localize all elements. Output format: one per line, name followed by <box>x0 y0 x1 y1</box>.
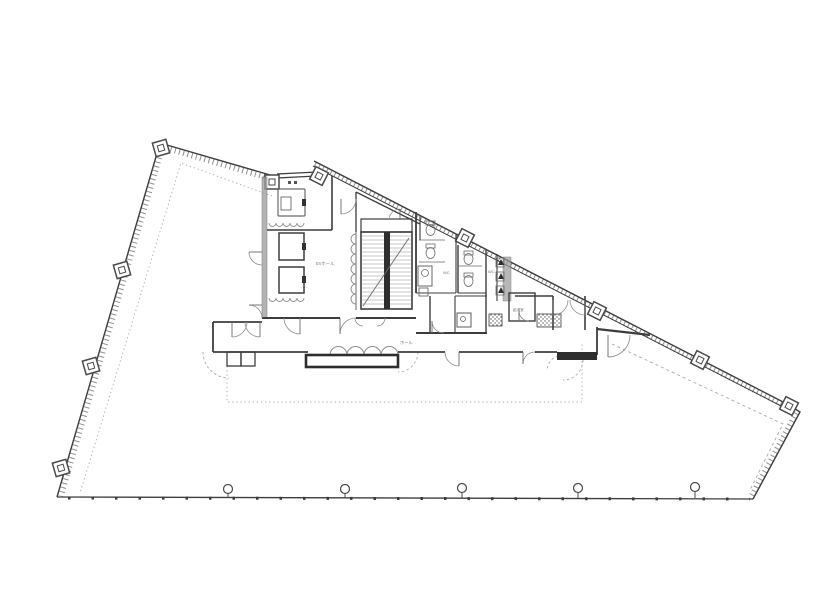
column-circle <box>458 484 467 493</box>
elevator-shaft-2 <box>279 267 304 293</box>
staircase <box>361 219 412 309</box>
duct-shaft <box>489 314 502 326</box>
column-circle <box>574 484 583 493</box>
planter-wall <box>557 352 597 360</box>
sink <box>461 317 466 322</box>
curtainwall-ticks-left <box>61 145 163 496</box>
washbasin-counter <box>418 266 432 286</box>
column-marker <box>780 397 799 416</box>
outer-boundary <box>57 143 800 499</box>
column-marker <box>310 167 329 186</box>
label-wc-a: WC <box>443 270 450 275</box>
floor-plan-canvas: EVホール <box>0 0 820 610</box>
scallop-row <box>269 298 304 302</box>
curtainwall-ticks-right <box>751 413 796 497</box>
mop-sink <box>419 288 428 296</box>
pier-box <box>241 352 255 366</box>
counter <box>457 313 471 327</box>
elevator-bank <box>279 233 306 293</box>
vent-louver-column <box>351 232 356 310</box>
column-circle <box>341 485 350 494</box>
column-marker <box>52 459 69 476</box>
dashed-door-arc <box>563 360 583 380</box>
setback-line-left <box>80 163 272 493</box>
column-markers <box>52 139 798 476</box>
curtainwall-ticks-top-left <box>162 147 275 180</box>
stair-landing <box>361 219 412 232</box>
label-wc-b: WC <box>488 269 495 274</box>
toilet-fixture <box>426 244 435 259</box>
column-marker <box>152 139 169 156</box>
column-circle <box>224 485 233 494</box>
equipment-box <box>278 189 305 216</box>
wall-right-edge <box>753 405 800 499</box>
equipment-inner <box>281 197 291 210</box>
dashed-door-arc <box>203 352 229 378</box>
entrance-canopy <box>306 355 398 367</box>
dashed-door-arc <box>398 352 418 372</box>
label-hall: ホール <box>400 340 413 345</box>
shaft-door <box>302 199 306 206</box>
column-marker <box>113 261 130 278</box>
floor-plan-page: EVホール <box>0 0 820 610</box>
column-marker <box>82 357 99 374</box>
column-circle <box>691 483 700 492</box>
toilet-fixture <box>464 251 473 265</box>
column-marker <box>588 302 607 321</box>
elevator-door <box>302 276 306 283</box>
wall-left <box>57 143 160 497</box>
sink <box>422 270 429 277</box>
core-left-wall <box>262 177 267 318</box>
wall-core-top-connector-a <box>277 172 317 174</box>
wall-bottom <box>57 497 753 499</box>
vent-mark <box>294 181 297 184</box>
duct-shaft <box>537 314 561 327</box>
wall-top-left-wing <box>160 143 277 177</box>
building-core: EVホール <box>213 176 650 367</box>
toilet-fixture <box>464 273 473 287</box>
scallop-row <box>269 223 304 227</box>
elevator-shaft-1 <box>279 233 304 260</box>
elevator-door <box>302 243 306 250</box>
upper-rooms <box>341 192 420 232</box>
restroom-men: WC <box>416 212 456 296</box>
column-grid-bottom-row <box>224 483 700 499</box>
kitchenette <box>416 296 487 333</box>
label-ev-hall: EVホール <box>316 261 334 266</box>
pier-box <box>227 352 241 366</box>
setback-dashed-lines <box>80 163 783 493</box>
label-pantry: 給湯室 <box>513 307 524 312</box>
pantry-room: 給湯室 <box>509 293 535 321</box>
vent-mark <box>288 181 291 184</box>
